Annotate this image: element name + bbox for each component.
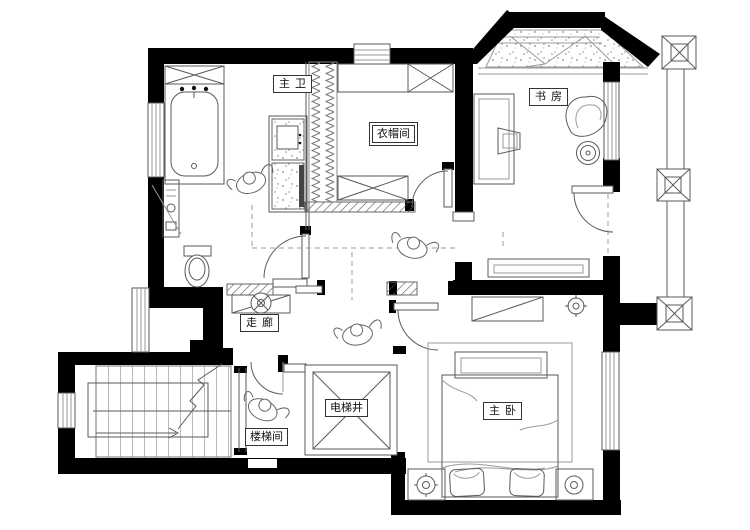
downlight	[565, 295, 587, 317]
side-table	[577, 142, 600, 165]
person-figure	[333, 319, 384, 348]
stone-vanity	[269, 116, 307, 212]
hall-console	[488, 259, 589, 277]
bathroom-door	[264, 234, 309, 278]
window-top	[354, 44, 390, 64]
room-label-study: 书房	[529, 88, 568, 106]
master-bedroom	[408, 295, 593, 500]
floor-plan-canvas: 主卫 衣帽间 书房 走廊 楼梯间 电梯井 主卧	[0, 0, 750, 530]
armchair	[566, 96, 607, 136]
pillow-right	[510, 468, 545, 496]
pillow-left	[449, 468, 484, 497]
room-label-corridor: 走廊	[240, 314, 279, 332]
pillar-top	[662, 36, 696, 69]
study-door	[572, 186, 613, 232]
window-west-mid	[132, 288, 149, 352]
toilet	[184, 246, 211, 287]
sliding-door	[273, 279, 322, 293]
pillar-middle	[657, 169, 690, 201]
low-wall-hatch-west	[227, 284, 273, 295]
bathtub	[165, 84, 224, 184]
person-figure	[226, 164, 278, 200]
window-stair	[58, 393, 75, 428]
low-wall-hatch-east	[387, 282, 417, 295]
wardrobe-bottom	[338, 176, 408, 200]
hanging-rail	[309, 62, 337, 202]
window-study-east	[604, 82, 619, 160]
person-figure	[388, 231, 440, 264]
low-wall-hatch	[305, 202, 415, 212]
master-bathroom	[152, 62, 309, 287]
room-label-elevator-shaft: 电梯井	[325, 399, 368, 417]
bath-cabinet	[165, 66, 224, 84]
fan-cabinet	[232, 293, 290, 313]
stairwell	[88, 364, 231, 457]
cloakroom-door	[412, 169, 452, 207]
nightstand-left	[408, 469, 445, 500]
pillar-bottom	[657, 297, 692, 330]
study	[474, 94, 613, 232]
foot-bench	[455, 352, 547, 378]
window-bedroom-east	[602, 352, 619, 450]
wardrobe	[472, 297, 543, 321]
room-label-master-bathroom: 主卫	[273, 75, 312, 93]
window-west-upper	[148, 103, 164, 177]
floor-plan-drawing	[0, 0, 750, 530]
wardrobe-top	[338, 64, 453, 92]
room-label-stairwell: 楼梯间	[245, 428, 288, 446]
nightstand-right	[556, 469, 593, 500]
room-label-master-bedroom: 主卧	[483, 402, 522, 420]
bed	[442, 375, 558, 497]
desk	[474, 94, 514, 184]
room-label-cloakroom: 衣帽间	[372, 125, 415, 143]
colonnade	[657, 36, 696, 330]
